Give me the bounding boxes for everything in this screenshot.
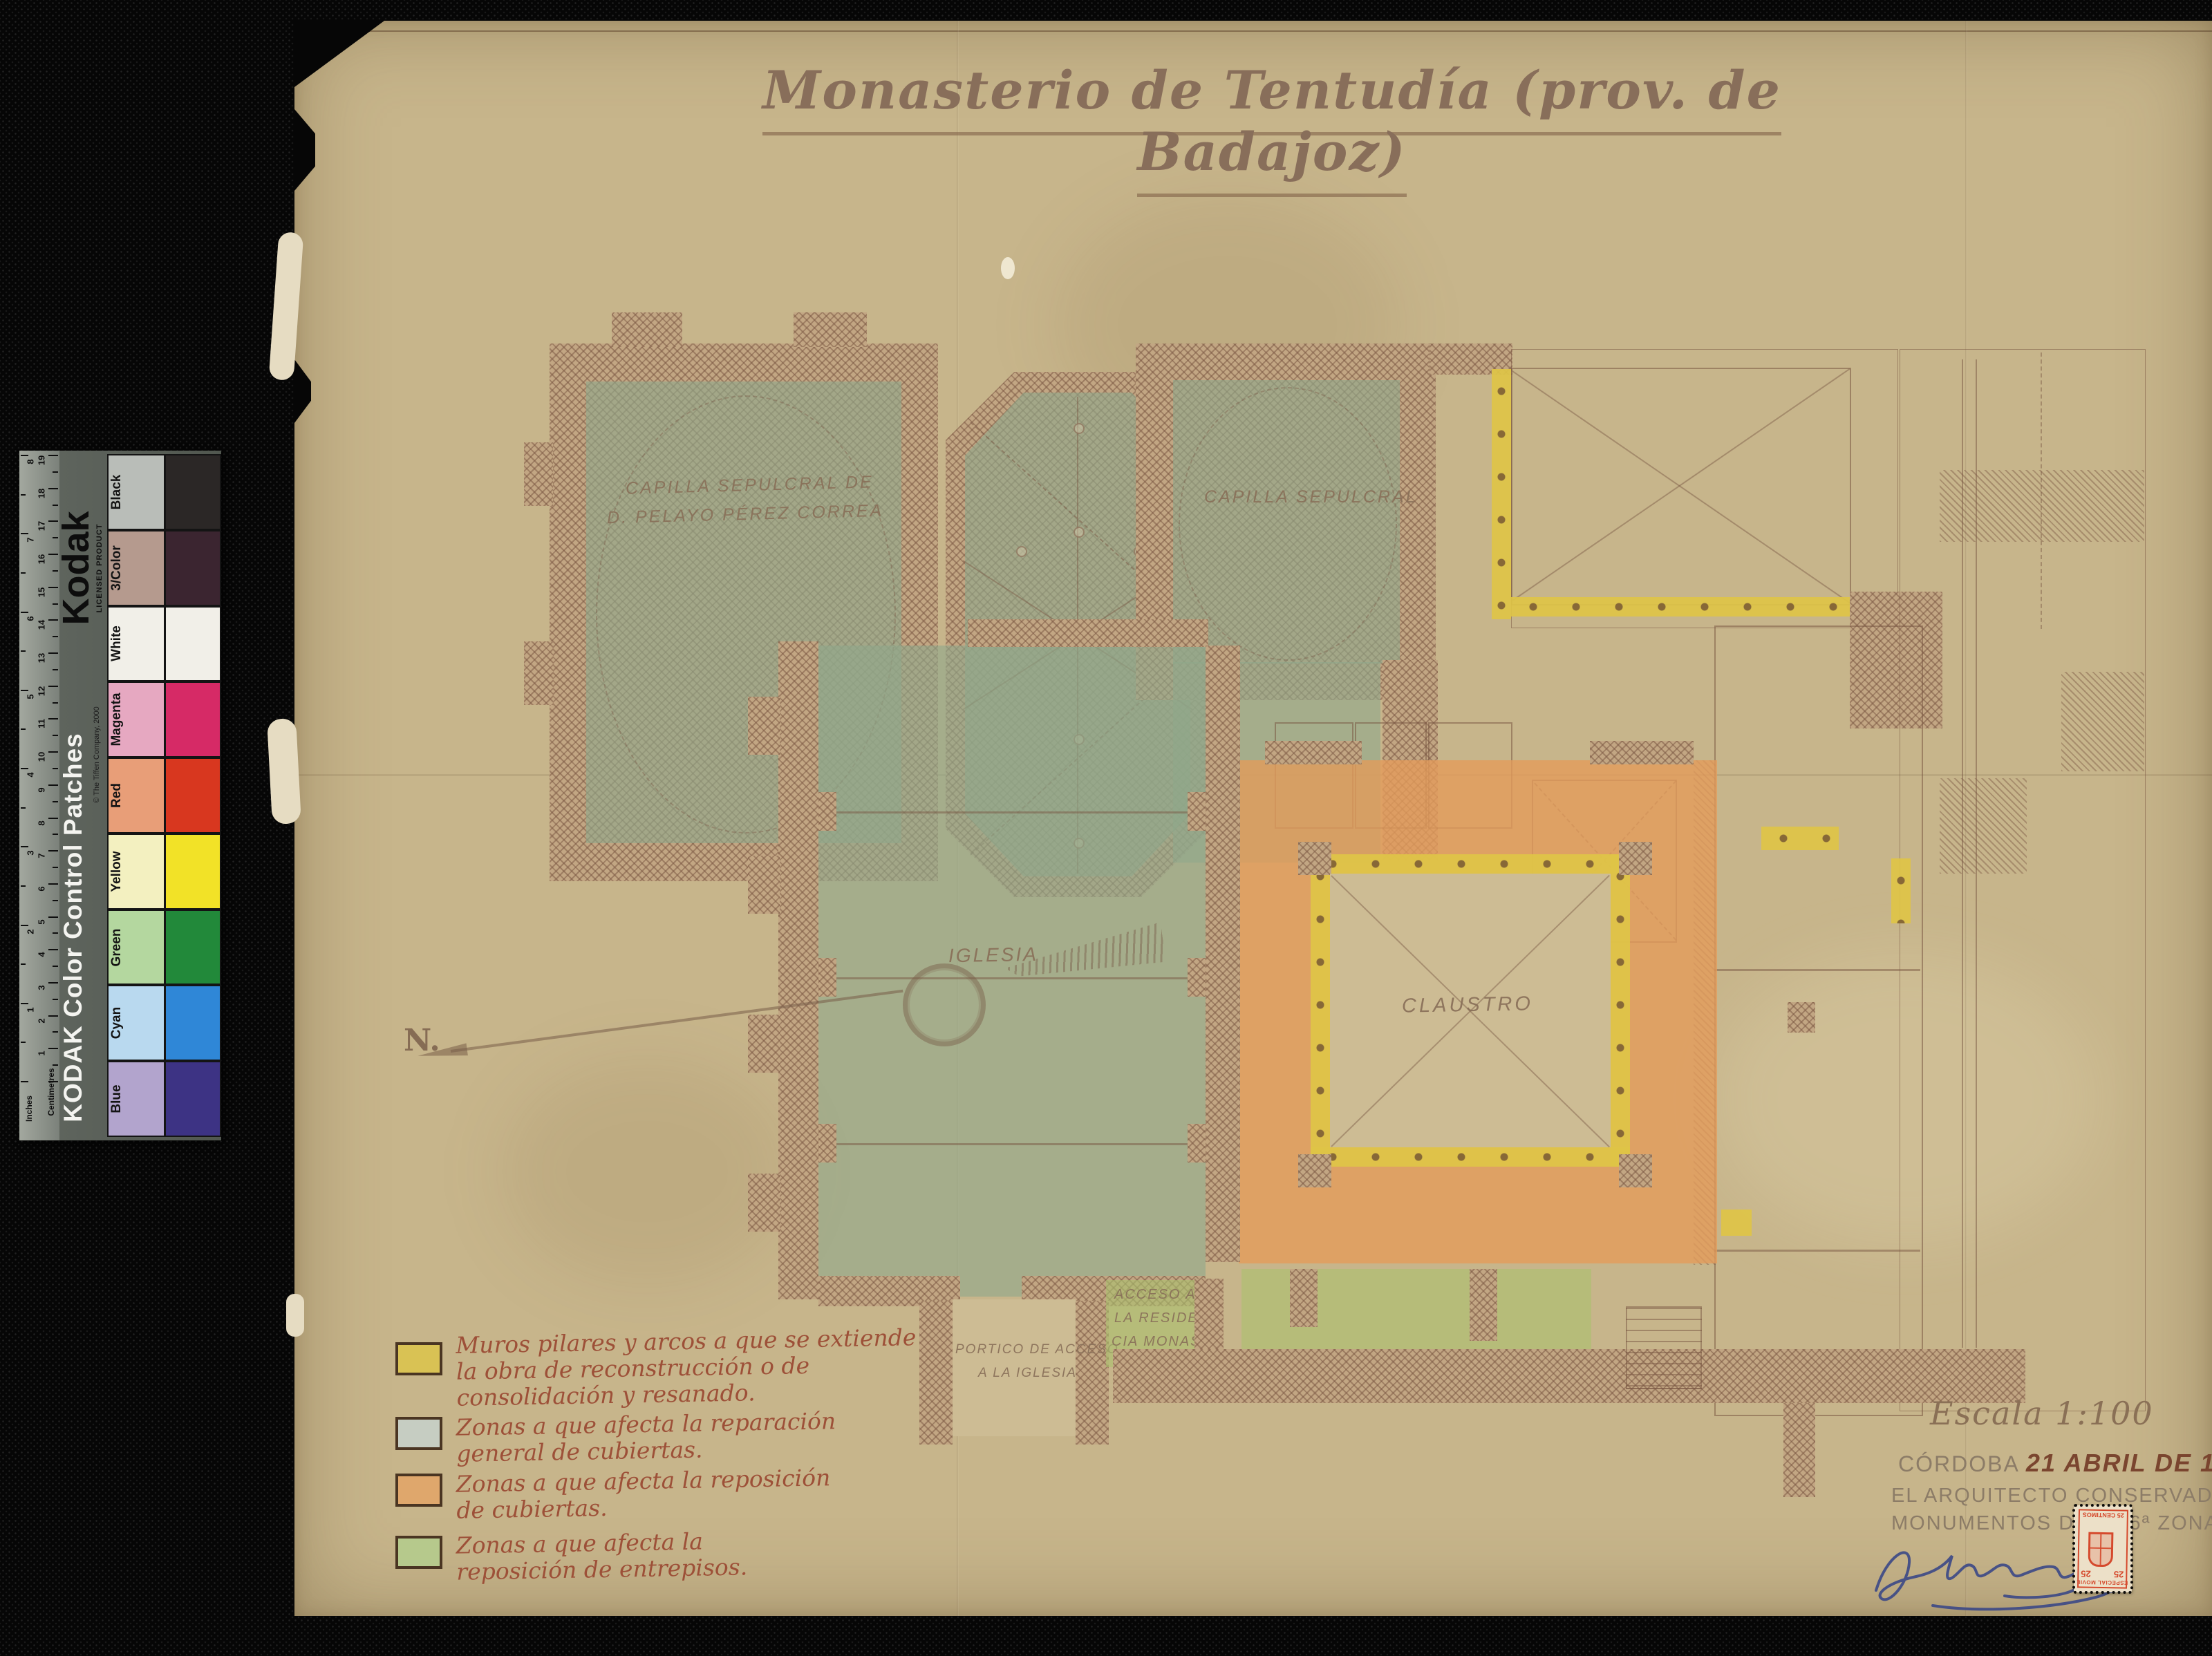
ruler-number: 4 <box>37 952 47 957</box>
ruler-tick <box>53 1031 58 1033</box>
ruler-number: 13 <box>37 653 47 663</box>
ruler-tick <box>48 949 58 950</box>
color-patch-3-color <box>166 531 220 605</box>
buttress <box>748 1015 780 1073</box>
wall-segment <box>1290 1269 1318 1327</box>
ruler-tick <box>48 982 58 984</box>
room-label-acceso: ACCESO A <box>1114 1287 1197 1303</box>
color-patch-red <box>166 759 220 832</box>
color-patch-label: Yellow <box>109 851 124 892</box>
ruler-tick <box>53 636 58 637</box>
wall-segment <box>1940 470 2144 542</box>
stamp-denomination: 25 CENTIMOS <box>2077 1511 2130 1518</box>
reconstruction-wall <box>1492 369 1511 619</box>
cloister-colonnade <box>1311 854 1630 874</box>
reconstruction-wall <box>1511 597 1850 617</box>
paper-scrap <box>286 1294 304 1337</box>
ruler-number: 2 <box>37 1018 47 1023</box>
ruler-number: 7 <box>26 538 36 543</box>
kodak-copyright-label: © The Tiffen Company, 2000 <box>93 706 101 803</box>
ruler-tick <box>21 925 28 926</box>
ruler-tick <box>21 1042 26 1043</box>
wall-segment <box>778 641 818 1299</box>
pier <box>1298 842 1331 875</box>
ruler-tick <box>53 900 58 901</box>
ruler-tick <box>48 652 58 654</box>
stamp-value: 25 <box>2081 1568 2091 1579</box>
kodak-product-label: KODAK Color Control Patches <box>59 733 88 1122</box>
ruler-tick <box>21 650 26 652</box>
wall-segment <box>1940 778 2027 874</box>
wall-segment <box>612 312 682 347</box>
vault-boss <box>1016 546 1027 557</box>
reconstruction-wall <box>1761 827 1839 850</box>
ruler-number: 17 <box>37 521 47 531</box>
color-patch-cyan <box>166 986 220 1060</box>
pier <box>818 1124 836 1163</box>
arch-line <box>818 1143 1206 1145</box>
ruler-tick <box>53 505 58 506</box>
vault-boss <box>1074 527 1085 538</box>
pier <box>818 792 836 831</box>
wall-segment <box>1590 741 1694 764</box>
architect-line: EL ARQUITECTO CONSERVADOR DE <box>1891 1485 2212 1507</box>
sheet-title-text: Monasterio de Tentudía (prov. de Badajoz… <box>762 59 1781 197</box>
place-date-line: CÓRDOBA 21 ABRIL DE 1955 <box>1898 1449 2212 1478</box>
pier <box>1788 1002 1815 1033</box>
wall-line <box>1714 969 1920 971</box>
ruler-tick <box>48 686 58 687</box>
wall-segment <box>968 619 1208 647</box>
kodak-cm-label: Centimetres <box>46 1068 56 1116</box>
ruler-number: 9 <box>37 787 47 792</box>
buttress <box>748 1174 780 1232</box>
legend-swatch-floor-replacement <box>395 1536 442 1569</box>
color-patch-black <box>166 455 220 529</box>
paper-chip <box>1001 257 1015 279</box>
ruler-number: 7 <box>37 854 47 858</box>
room-label-acceso: CIA MONAS- <box>1112 1334 1207 1350</box>
ruler-tick <box>21 455 28 456</box>
arch-line <box>818 977 1206 979</box>
ruler-number: 4 <box>26 772 36 777</box>
paper-scrap <box>267 718 301 825</box>
wall-line-dashed <box>2041 352 2042 629</box>
scale-label: Escala 1:100 <box>1930 1395 2154 1432</box>
ruler-tick <box>48 455 58 456</box>
ruler-number: 10 <box>37 752 47 762</box>
wall-segment <box>1470 1269 1497 1341</box>
kodak-licensed-label: LICENSED PRODUCT <box>95 523 104 612</box>
room-label-capilla-sepulcral: CAPILLA SEPULCRAL <box>1204 487 1418 507</box>
ruler-tick <box>53 932 58 934</box>
wall-line <box>1976 359 1977 1348</box>
ruler-tick <box>21 494 26 496</box>
stamp-emblem <box>2088 1532 2114 1568</box>
fiscal-stamp-art: ESPECIAL MOVIL 25 25 25 CENTIMOS <box>2075 1507 2130 1590</box>
cloister-colonnade <box>1311 854 1330 1167</box>
legend-text-roof-replacement: Zonas a que afecta la reposición de cubi… <box>456 1465 831 1523</box>
ruler-tick <box>53 867 58 868</box>
ruler-tick <box>48 1048 58 1049</box>
legend-swatch-roof-repair <box>395 1417 442 1450</box>
wall-segment <box>1783 1403 1815 1497</box>
room-label-portico: PORTICO DE ACCESO <box>955 1342 1119 1357</box>
ruler-number: 3 <box>37 985 47 990</box>
ruler-number: 8 <box>26 459 36 464</box>
ruler-tick <box>21 572 26 574</box>
wall-segment <box>524 442 553 506</box>
ruler-tick <box>53 702 58 704</box>
wall-segment <box>1206 646 1240 1262</box>
ruler-tick <box>21 533 28 534</box>
arch-line <box>818 811 1206 813</box>
stamp-series-label: ESPECIAL MOVIL <box>2075 1579 2129 1586</box>
color-patch-label: White <box>109 626 124 662</box>
ruler-tick <box>48 850 58 851</box>
ruler-number: 5 <box>37 919 47 924</box>
ruler-number: 6 <box>37 886 47 891</box>
legend-line: reposición de entrepisos. <box>456 1554 747 1585</box>
color-patch-label: Cyan <box>109 1007 124 1039</box>
place-label: CÓRDOBA <box>1898 1451 2018 1476</box>
ruler-number: 1 <box>26 1007 36 1012</box>
ruler-number: 5 <box>26 694 36 699</box>
ruler-tick <box>53 999 58 1000</box>
pier <box>1188 1124 1206 1163</box>
room-outline <box>1714 625 1923 1416</box>
wall-segment <box>1076 1301 1109 1445</box>
ruler-number: 15 <box>37 587 47 597</box>
buttress <box>748 856 780 914</box>
ruler-tick <box>21 612 28 613</box>
legend-text-reconstruction: Muros pilares y arcos a que se extiende … <box>456 1324 917 1411</box>
legend-swatch-reconstruction <box>395 1342 442 1375</box>
wall-segment <box>794 312 867 347</box>
wall-segment <box>524 641 553 705</box>
ruler-number: 11 <box>37 719 47 729</box>
ruler-tick <box>53 669 58 670</box>
stamp-value: 25 <box>2114 1569 2124 1579</box>
ruler-number: 18 <box>37 488 47 498</box>
reconstruction-wall <box>1891 858 1911 923</box>
ruler-tick <box>53 966 58 967</box>
wall-segment <box>919 1301 953 1445</box>
color-patch-blue <box>166 1062 220 1136</box>
legend-text-floor-replacement: Zonas a que afecta la reposición de entr… <box>456 1527 747 1585</box>
ruler-tick <box>53 735 58 736</box>
ruler-number: 12 <box>37 686 47 696</box>
wall-line <box>1714 1250 1920 1252</box>
ruler-number: 8 <box>37 820 47 825</box>
scanner-bed: Monasterio de Tentudía (prov. de Badajoz… <box>0 0 2212 1656</box>
cloister-colonnade <box>1611 854 1630 1167</box>
ruler-tick <box>53 834 58 835</box>
date-label: 21 ABRIL DE 1955 <box>2026 1449 2212 1477</box>
compass-rose <box>903 963 986 1046</box>
pier <box>1188 958 1206 997</box>
north-label: N. <box>404 1023 440 1058</box>
ruler-tick <box>21 1081 28 1082</box>
pier <box>1298 1154 1331 1187</box>
reconstruction-wall <box>1721 1210 1752 1236</box>
buttress <box>748 697 780 755</box>
ruler-tick <box>21 807 26 809</box>
ruler-tick <box>53 1064 58 1066</box>
color-patch-label: Red <box>109 783 124 808</box>
color-patch-label: Magenta <box>109 693 124 746</box>
color-patch-label: Green <box>109 928 124 966</box>
paper-fold <box>294 30 2212 32</box>
legend-swatch-roof-replacement <box>395 1474 442 1507</box>
ruler-tick <box>48 751 58 753</box>
sheet-title: Monasterio de Tentudía (prov. de Badajoz… <box>719 59 1825 182</box>
ruler-tick <box>21 768 28 769</box>
pier <box>1188 792 1206 831</box>
room-label-claustro: CLAUSTRO <box>1402 992 1533 1017</box>
ruler-tick <box>48 818 58 819</box>
pier <box>818 958 836 997</box>
ruler-tick <box>21 846 28 847</box>
color-patch-label: Blue <box>109 1085 124 1113</box>
ruler-number: 14 <box>37 620 47 630</box>
wall-line <box>1962 359 1963 1348</box>
ruler-tick <box>53 801 58 802</box>
legend-text-roof-repair: Zonas a que afecta la reparación general… <box>456 1408 836 1467</box>
ruler-tick <box>21 1003 28 1004</box>
kodak-color-control-strip: 1918171615141312111098765432187654321 Ko… <box>19 451 221 1140</box>
kodak-brand-logo: Kodak <box>55 511 97 625</box>
ruler-tick <box>21 728 26 730</box>
ruler-tick <box>48 1015 58 1017</box>
cloister-colonnade <box>1311 1147 1630 1167</box>
ruler-number: 1 <box>37 1051 47 1056</box>
ruler-number: 16 <box>37 554 47 564</box>
ruler-tick <box>21 963 26 965</box>
ruler-number: 2 <box>26 929 36 934</box>
ruler-tick <box>53 471 58 473</box>
staircase <box>1626 1306 1702 1389</box>
wall-segment <box>2061 672 2144 771</box>
color-patch-green <box>166 911 220 984</box>
ruler-tick <box>48 488 58 489</box>
color-patch-yellow <box>166 835 220 908</box>
ruler-tick <box>48 784 58 786</box>
pier <box>1619 842 1652 875</box>
fiscal-stamp: ESPECIAL MOVIL 25 25 25 CENTIMOS <box>2074 1505 2132 1592</box>
ruler-tick <box>21 690 28 691</box>
ruler-tick <box>48 883 58 885</box>
color-patch-white <box>166 608 220 681</box>
ruler-number: 6 <box>26 616 36 621</box>
kodak-ruler: 1918171615141312111098765432187654321 <box>19 451 59 1140</box>
pier <box>1619 1154 1652 1187</box>
paper-stain <box>502 1057 792 1286</box>
wall-segment <box>1113 1349 2025 1403</box>
vault-boss <box>1074 423 1085 434</box>
ruler-tick <box>53 768 58 769</box>
stamp-value-text: 25 <box>2117 1512 2124 1518</box>
ruler-tick <box>48 718 58 719</box>
stamp-unit-text: CENTIMOS <box>2083 1511 2116 1518</box>
kodak-in-label: Inches <box>24 1095 34 1122</box>
wall-segment <box>1265 741 1362 764</box>
color-patch-label: 3/Color <box>109 545 124 590</box>
ruler-tick <box>21 885 26 887</box>
color-patch-magenta <box>166 683 220 756</box>
vault-outline <box>1179 387 1397 661</box>
room-label-portico: A LA IGLESIA <box>978 1366 1077 1381</box>
ruler-number: 19 <box>37 455 47 465</box>
ruler-tick <box>48 916 58 918</box>
ruler-number: 3 <box>26 851 36 856</box>
color-patch-label: Black <box>109 475 124 510</box>
